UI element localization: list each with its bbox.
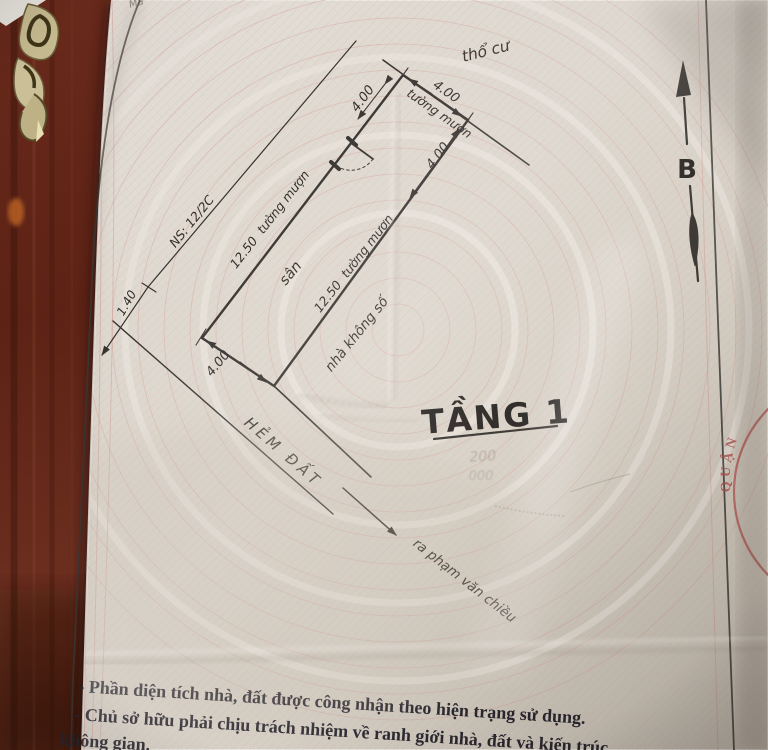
vignette-overlay xyxy=(0,0,768,750)
land-plan-photo: Mẫ xyxy=(0,0,768,750)
